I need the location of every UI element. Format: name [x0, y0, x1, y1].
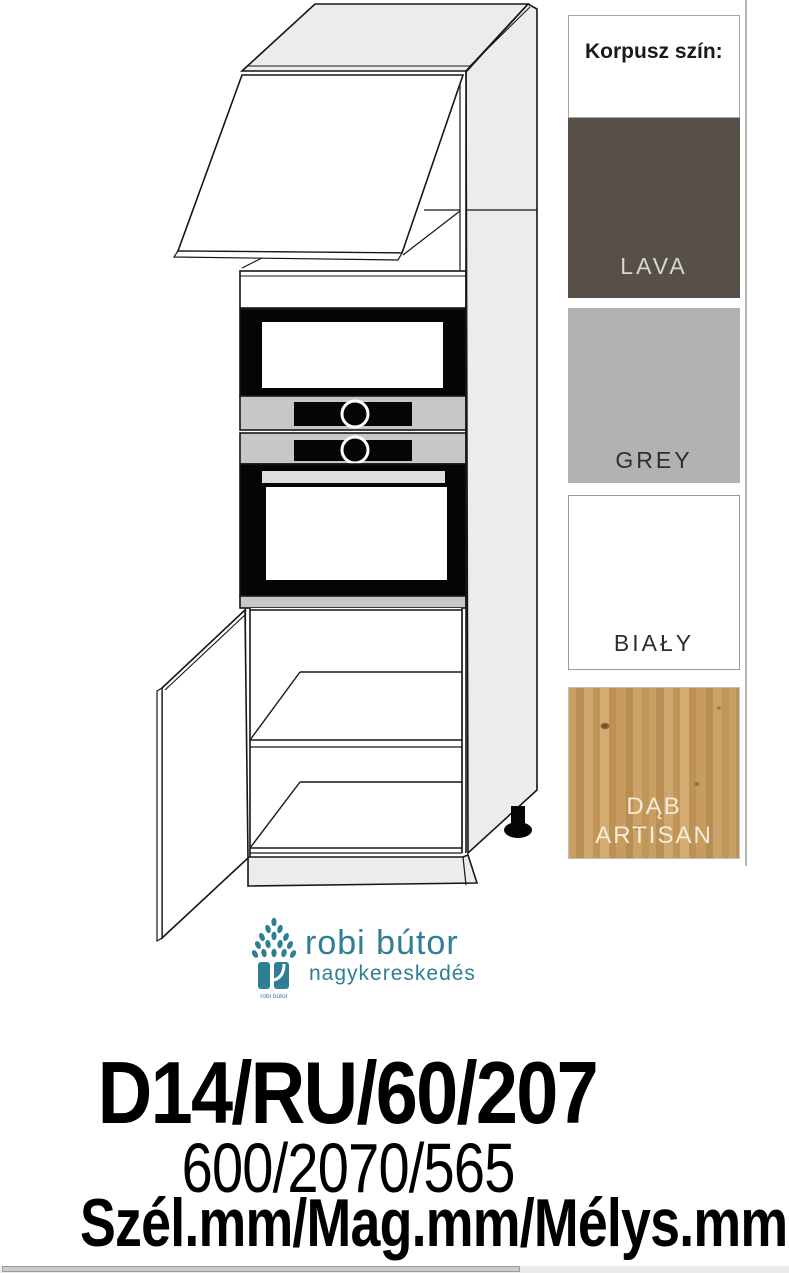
plinth [248, 855, 477, 886]
cabinet-drawing [0, 0, 560, 960]
swatch-lava: LAVA [568, 118, 740, 298]
oven-window [266, 487, 447, 580]
tree-icon: robi bútor [250, 916, 300, 1000]
brand-name: robi bútor [305, 924, 459, 963]
scrollbar-thumb[interactable] [2, 1266, 520, 1272]
microwave [240, 309, 466, 396]
swatch-grey: GREY [568, 308, 740, 483]
swatch-dab-artisan-label: DĄB ARTISAN [569, 792, 739, 850]
horizontal-scrollbar[interactable] [0, 1266, 789, 1273]
knob-bottom [342, 437, 368, 463]
panel-divider-line [745, 0, 747, 866]
swatch-panel-header: Korpusz szín: [568, 15, 740, 118]
filler-panel [240, 271, 466, 308]
swatch-bialy-label: BIAŁY [569, 630, 739, 657]
microwave-window [262, 322, 443, 388]
control-panel-bottom [240, 433, 466, 464]
dimension-labels: Szél.mm/Mag.mm/Mélys.mm [0, 1192, 775, 1254]
knob-top [342, 401, 368, 427]
brand-logo: robi bútor robi bútor nagykereskedés [250, 914, 465, 1002]
product-code: D14/RU/60/207 [0, 1053, 742, 1133]
swatch-dab-artisan: DĄB ARTISAN [568, 687, 740, 859]
oven [240, 464, 466, 608]
base-door [157, 610, 248, 941]
swatch-lava-label: LAVA [568, 253, 740, 280]
side-panel [462, 4, 537, 853]
control-panel-top [240, 396, 466, 430]
swatch-grey-label: GREY [568, 447, 740, 474]
oven-handle [262, 471, 445, 483]
tree-icon-caption: robi bútor [260, 993, 288, 1000]
product-sheet: Korpusz szín: LAVA GREY BIAŁY DĄB ARTISA… [0, 0, 789, 1273]
brand-subtitle: nagykereskedés [309, 962, 476, 986]
swatch-panel-title: Korpusz szín: [585, 40, 739, 64]
swatch-bialy: BIAŁY [568, 495, 740, 670]
